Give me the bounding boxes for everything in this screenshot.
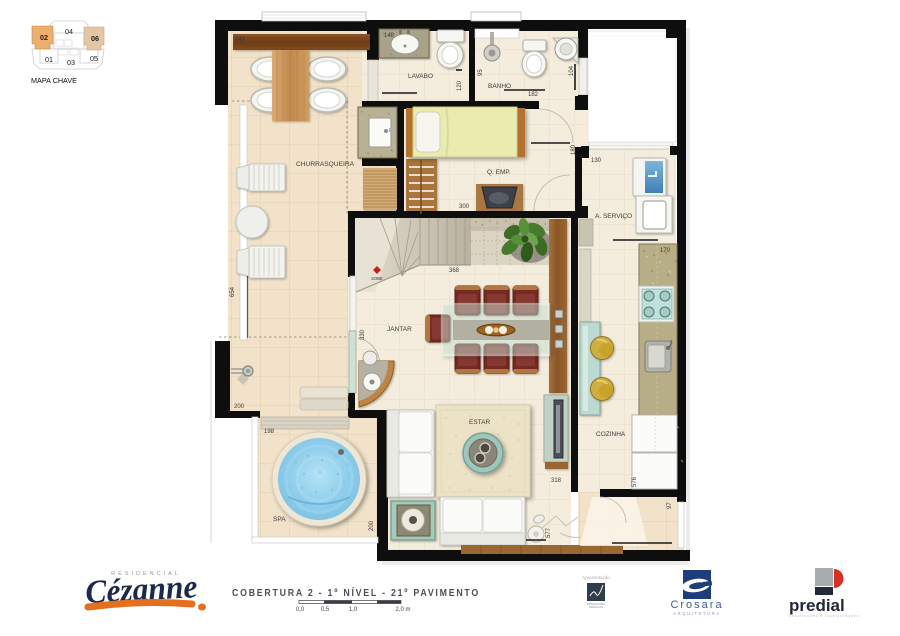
svg-text:368: 368	[449, 268, 460, 274]
svg-text:CHURRASQUEIRA: CHURRASQUEIRA	[296, 161, 355, 168]
svg-text:95: 95	[478, 69, 484, 76]
svg-text:BANHO: BANHO	[488, 83, 511, 90]
svg-text:330: 330	[360, 329, 366, 340]
svg-text:577: 577	[546, 527, 552, 538]
svg-text:MAPA CHAVE: MAPA CHAVE	[31, 76, 77, 85]
svg-text:Q. EMP.: Q. EMP.	[487, 169, 511, 176]
svg-text:2,0 m: 2,0 m	[395, 607, 410, 613]
svg-text:SPA: SPA	[273, 516, 286, 523]
svg-text:A. SERVIÇO: A. SERVIÇO	[595, 213, 632, 220]
svg-text:576: 576	[632, 476, 638, 487]
svg-text:0,0: 0,0	[296, 607, 305, 613]
svg-text:ARQUITETURA: ARQUITETURA	[673, 611, 721, 616]
svg-text:654: 654	[230, 286, 236, 297]
svg-text:Crosara: Crosara	[670, 599, 723, 611]
svg-text:COZINHA: COZINHA	[596, 431, 626, 438]
svg-text:200: 200	[369, 520, 375, 531]
svg-text:04: 04	[65, 27, 73, 36]
svg-text:LAVABO: LAVABO	[408, 73, 433, 80]
svg-text:300: 300	[459, 204, 470, 210]
svg-text:01: 01	[45, 55, 53, 64]
svg-text:SOBE: SOBE	[371, 276, 383, 281]
svg-text:COBERTURA 2 - 1º NÍVEL - 21º P: COBERTURA 2 - 1º NÍVEL - 21º PAVIMENTO	[232, 586, 480, 599]
svg-text:97: 97	[667, 502, 673, 509]
svg-text:243: 243	[235, 37, 246, 43]
svg-text:02: 02	[40, 33, 48, 42]
svg-text:104: 104	[569, 65, 575, 76]
svg-text:1,0: 1,0	[349, 607, 358, 613]
svg-text:predial: predial	[789, 596, 845, 615]
svg-text:03: 03	[67, 58, 75, 67]
svg-text:JANTAR: JANTAR	[387, 326, 412, 333]
svg-text:construções e incorporações: construções e incorporações	[789, 614, 859, 618]
svg-text:182: 182	[528, 92, 539, 98]
svg-text:200: 200	[234, 404, 245, 410]
svg-text:120: 120	[457, 80, 463, 91]
svg-text:ESTAR: ESTAR	[469, 419, 490, 426]
svg-text:198: 198	[264, 429, 275, 435]
svg-text:0,5: 0,5	[321, 607, 330, 613]
svg-text:170: 170	[660, 248, 671, 254]
svg-text:06: 06	[91, 34, 99, 43]
svg-text:Apresentação: Apresentação	[582, 575, 610, 580]
svg-text:GRÁFICAS: GRÁFICAS	[589, 605, 603, 609]
svg-text:130: 130	[591, 158, 602, 164]
svg-text:148: 148	[384, 33, 395, 39]
svg-text:180: 180	[571, 144, 577, 155]
svg-text:318: 318	[551, 478, 562, 484]
svg-text:05: 05	[90, 54, 98, 63]
